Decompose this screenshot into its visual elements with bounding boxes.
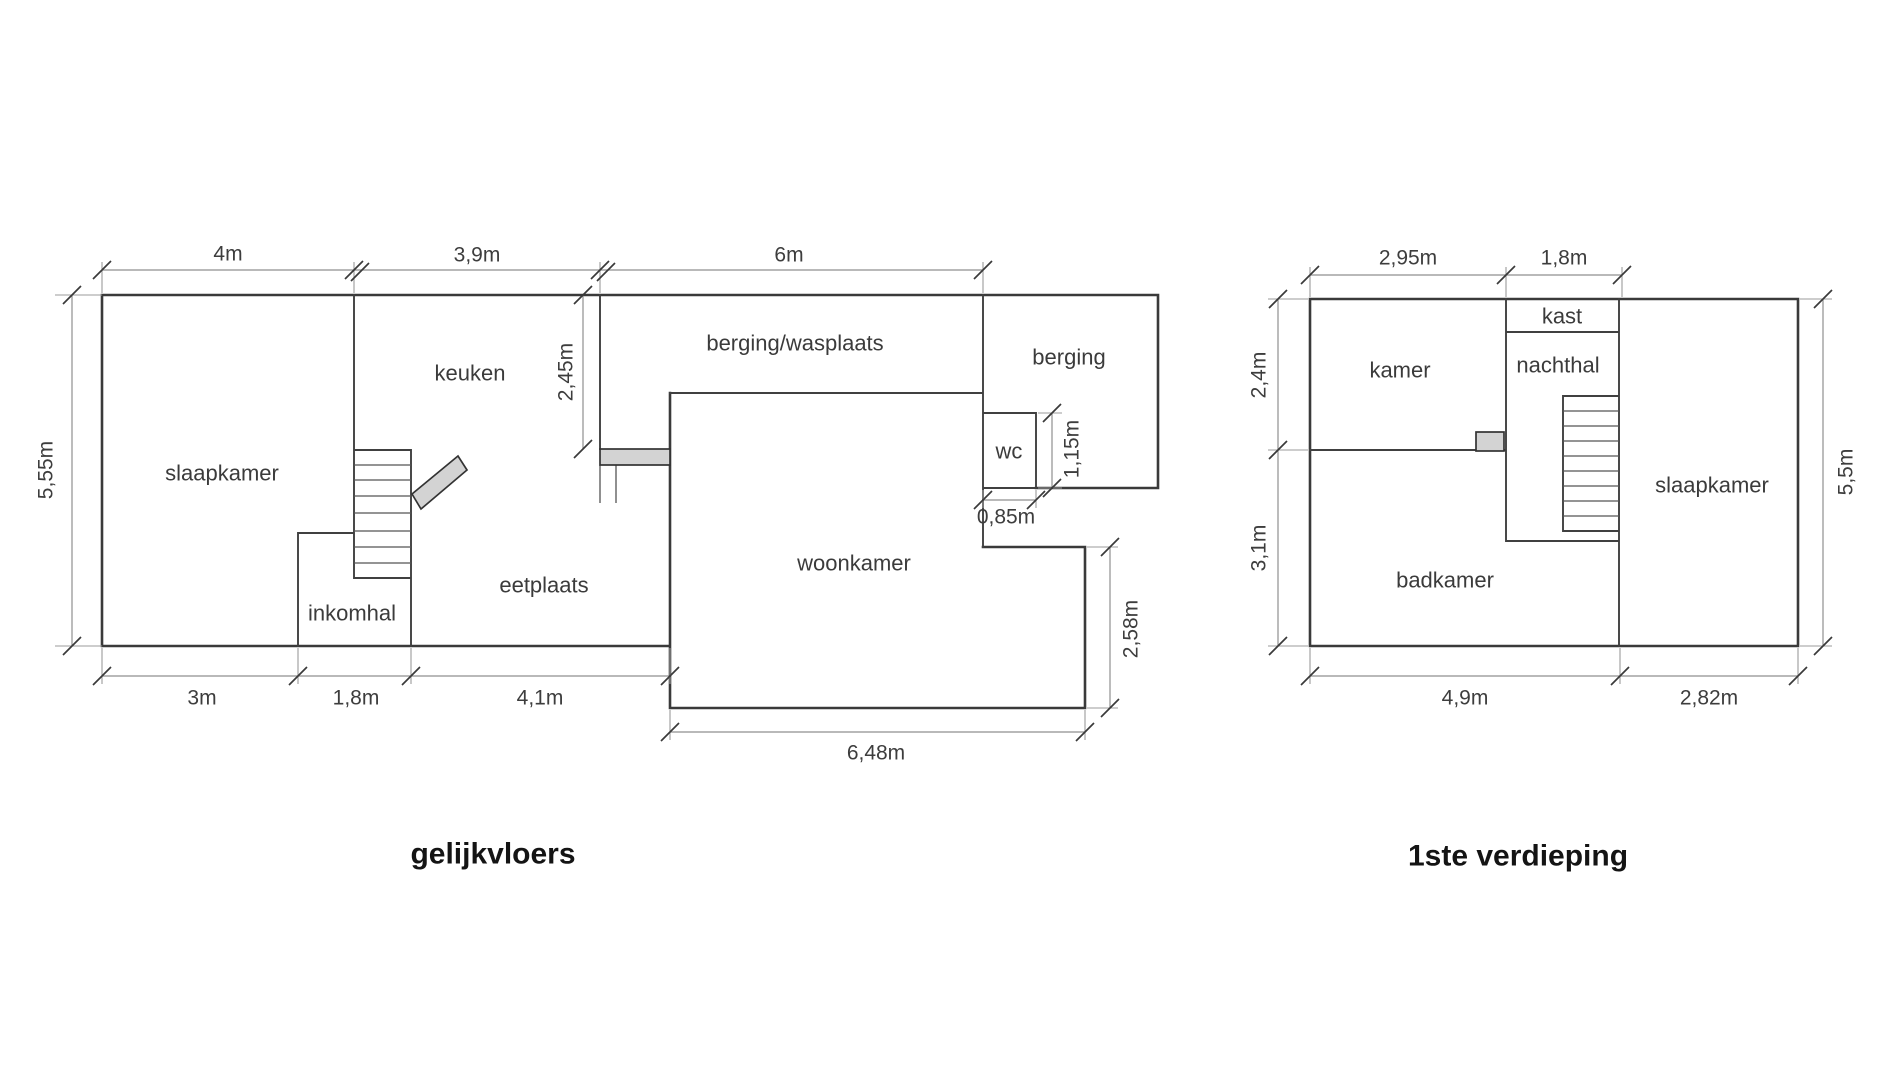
- room-label-berging-wasplaats: berging/wasplaats: [706, 331, 883, 356]
- first-floor-plan: kamer kast nachthal slaapkamer badkamer …: [1248, 247, 1858, 873]
- door-staircase-angled: [412, 456, 467, 509]
- dim-label-1-8m-gf: 1,8m: [333, 687, 380, 710]
- dim-label-1-8m-ff: 1,8m: [1541, 247, 1588, 270]
- room-label-wc: wc: [995, 439, 1023, 464]
- dim-label-2-82m: 2,82m: [1680, 687, 1738, 710]
- room-label-kast: kast: [1542, 304, 1582, 329]
- dim-label-1-15m: 1,15m: [1061, 420, 1084, 478]
- dim-label-2-95m: 2,95m: [1379, 247, 1437, 270]
- room-label-slaapkamer-gf: slaapkamer: [165, 461, 279, 486]
- dim-label-2-45m: 2,45m: [555, 343, 578, 401]
- ground-floor-plan: slaapkamer keuken berging/wasplaats berg…: [35, 243, 1159, 871]
- ground-floor-dimension-ticks: [63, 261, 1119, 741]
- ground-floor-outer-walls: [102, 295, 1158, 708]
- dim-label-4-9m: 4,9m: [1442, 687, 1489, 710]
- dim-label-5-55m: 5,55m: [35, 441, 58, 499]
- dim-label-3m: 3m: [187, 687, 216, 710]
- dim-label-6m: 6m: [774, 244, 803, 267]
- room-label-inkomhal: inkomhal: [308, 601, 396, 626]
- dim-label-3-1m: 3,1m: [1248, 525, 1271, 572]
- ground-floor-inner-walls: [298, 295, 1036, 646]
- floor-plan-canvas: slaapkamer keuken berging/wasplaats berg…: [0, 0, 1886, 1080]
- dim-label-5-5m: 5,5m: [1835, 449, 1858, 496]
- ground-floor-dimension-lines: [72, 270, 1110, 732]
- floor-plan-drawing: slaapkamer keuken berging/wasplaats berg…: [0, 0, 1886, 1080]
- dim-label-2-4m: 2,4m: [1248, 352, 1271, 399]
- room-label-nachthal: nachthal: [1516, 353, 1599, 378]
- room-label-berging: berging: [1032, 345, 1105, 370]
- plan-title-1ste-verdieping: 1ste verdieping: [1408, 840, 1628, 873]
- ground-floor-extension-lines: [55, 262, 1118, 740]
- dim-label-2-58m: 2,58m: [1120, 600, 1143, 658]
- door-wasplaats: [600, 449, 670, 465]
- dim-label-4-1m: 4,1m: [517, 687, 564, 710]
- first-floor-inner-walls: [1310, 299, 1619, 646]
- door-kamer: [1476, 432, 1504, 451]
- room-label-kamer: kamer: [1369, 358, 1430, 383]
- dim-label-6-48m: 6,48m: [847, 742, 905, 765]
- room-label-keuken: keuken: [435, 361, 506, 386]
- first-floor-staircase: [1563, 411, 1619, 516]
- plan-title-gelijkvloers: gelijkvloers: [410, 838, 575, 871]
- room-label-badkamer: badkamer: [1396, 568, 1494, 593]
- door-swing-lines: [600, 465, 616, 503]
- room-label-woonkamer: woonkamer: [796, 551, 911, 576]
- dim-label-0-85m: 0,85m: [977, 506, 1035, 529]
- room-label-eetplaats: eetplaats: [499, 573, 588, 598]
- room-label-slaapkamer-ff: slaapkamer: [1655, 473, 1769, 498]
- dim-label-3-9m: 3,9m: [454, 244, 501, 267]
- ground-floor-staircase: [354, 465, 411, 563]
- dim-label-4m: 4m: [213, 243, 242, 266]
